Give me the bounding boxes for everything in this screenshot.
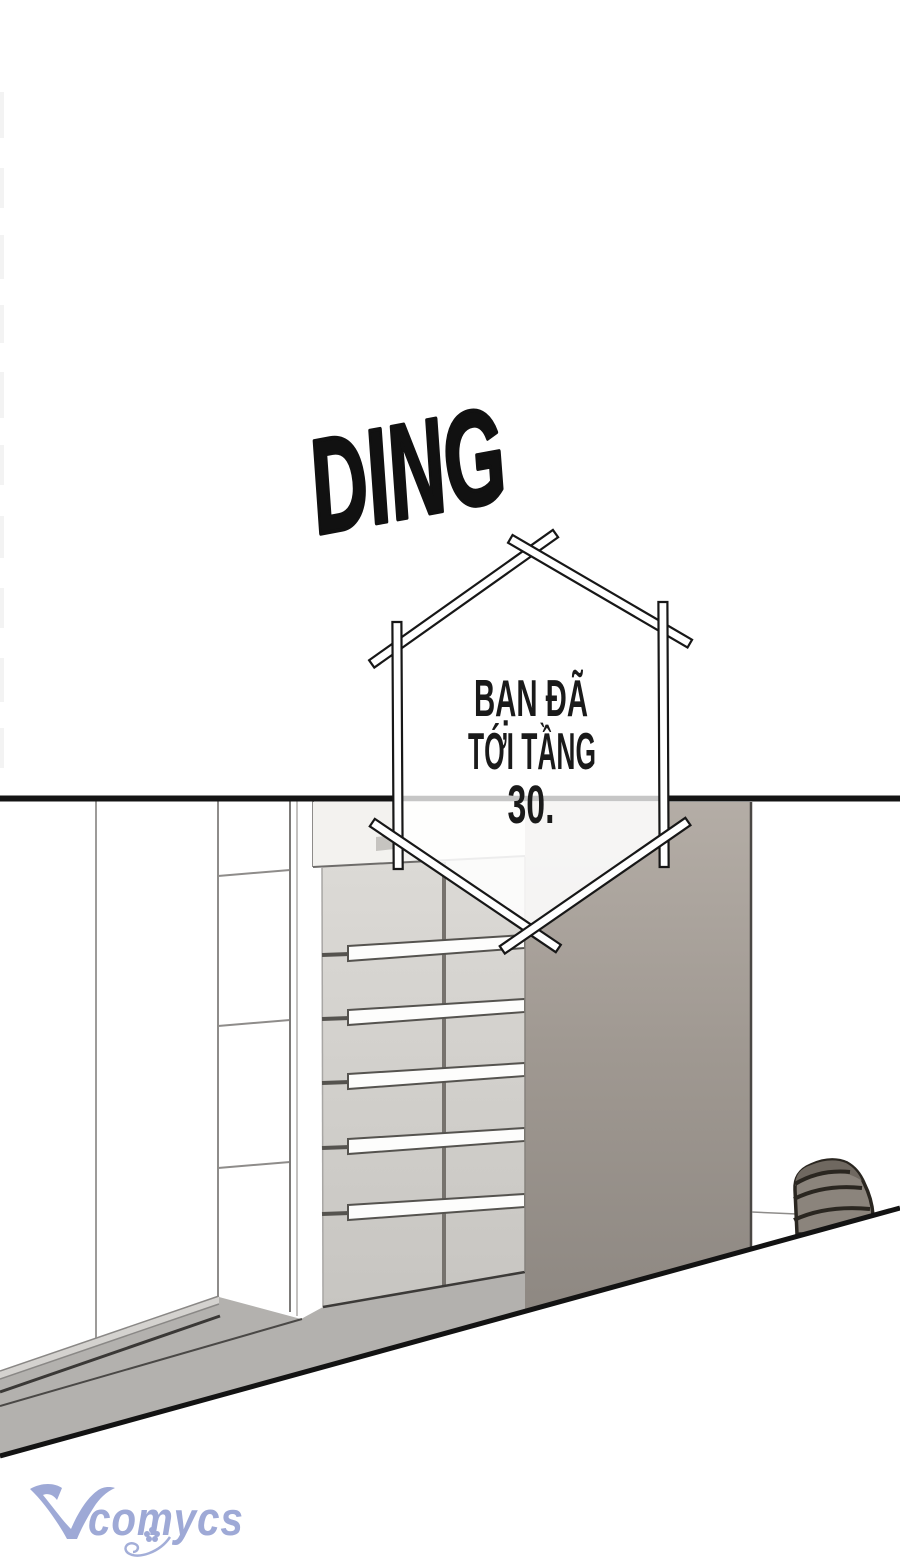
- svg-text:comycs: comycs: [88, 1493, 244, 1546]
- svg-text:30.: 30.: [508, 775, 555, 835]
- svg-text:TỚI TẦNG: TỚI TẦNG: [468, 722, 596, 781]
- svg-text:BẠN ĐÃ: BẠN ĐÃ: [474, 669, 588, 728]
